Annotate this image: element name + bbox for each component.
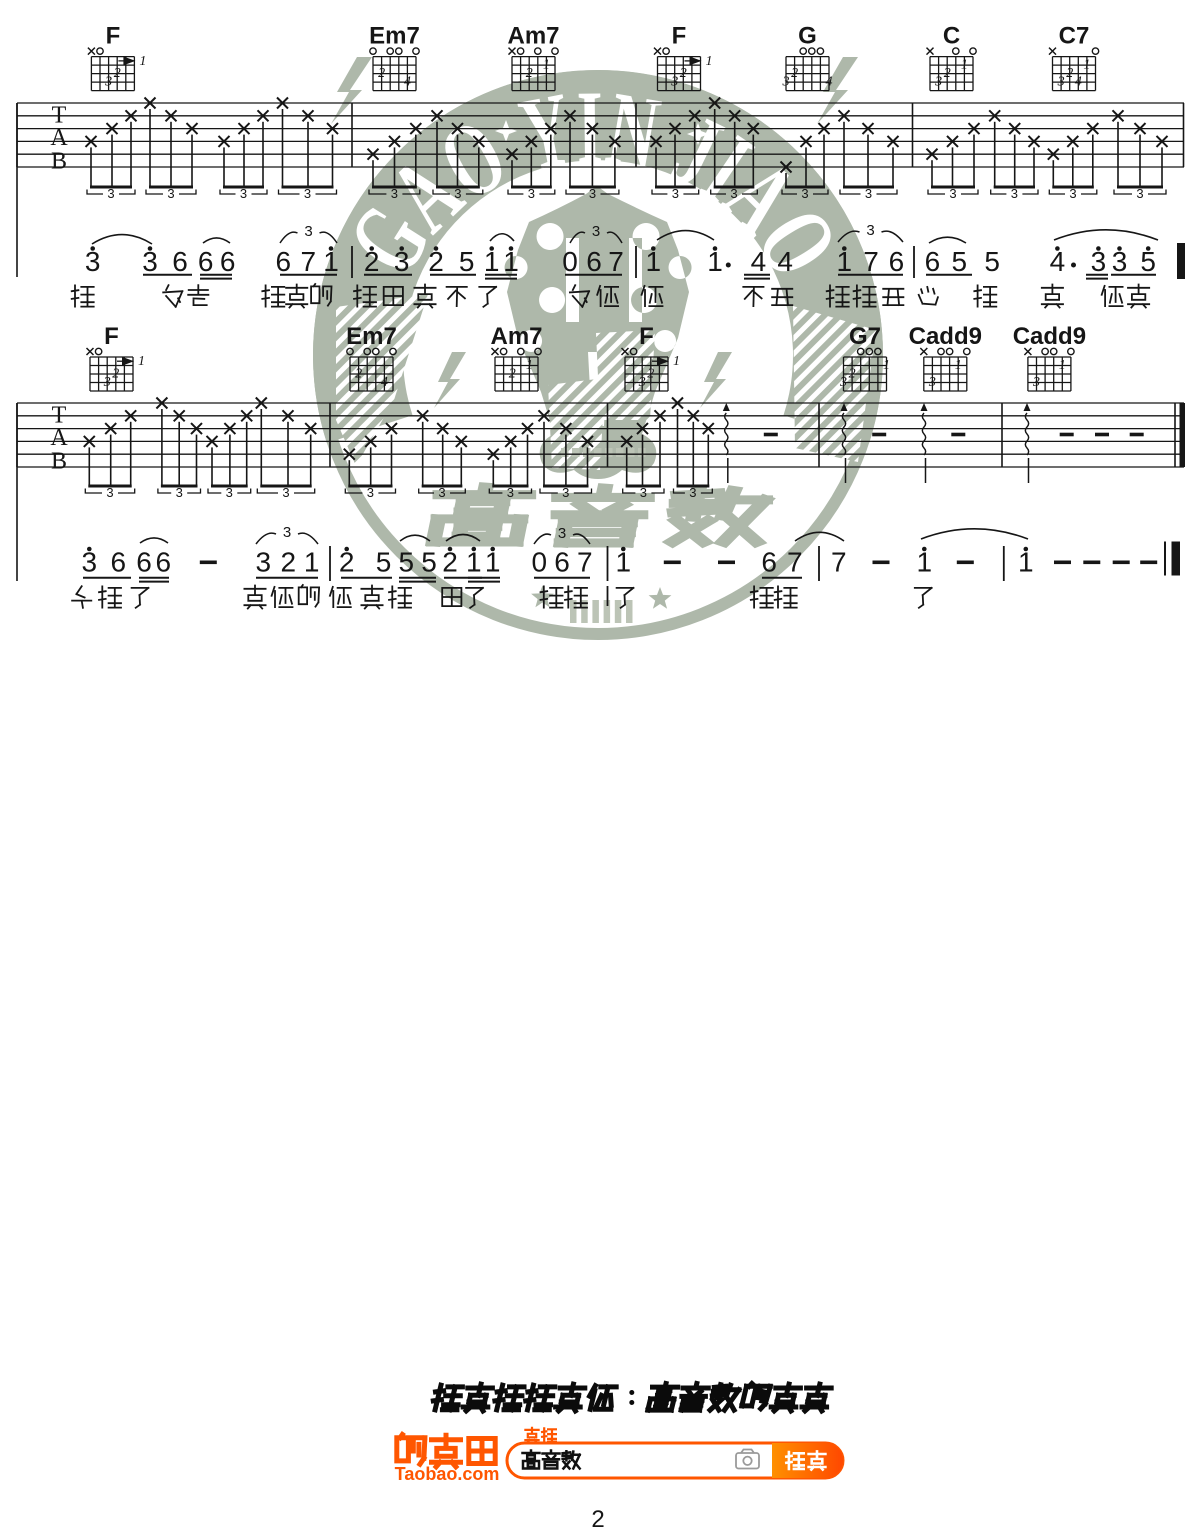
svg-text:3: 3: [1011, 186, 1018, 201]
svg-text:1: 1: [673, 354, 680, 369]
svg-text:3: 3: [167, 186, 174, 201]
svg-text:6: 6: [220, 246, 236, 277]
svg-text:1: 1: [139, 54, 146, 69]
svg-text:2: 2: [281, 547, 297, 578]
svg-text:4: 4: [751, 246, 767, 277]
svg-text:2: 2: [526, 66, 533, 81]
svg-text:3: 3: [928, 375, 936, 390]
svg-text:1: 1: [706, 54, 713, 69]
svg-text:3: 3: [782, 75, 790, 90]
svg-text:2: 2: [849, 367, 856, 382]
svg-text:2: 2: [791, 66, 798, 81]
svg-text:2: 2: [355, 367, 362, 382]
svg-text:6: 6: [761, 547, 777, 578]
svg-text:5: 5: [399, 547, 415, 578]
svg-text:7: 7: [863, 246, 879, 277]
svg-text:3: 3: [1057, 75, 1065, 90]
svg-text:3: 3: [528, 186, 535, 201]
svg-text:1: 1: [961, 58, 968, 73]
svg-text:3: 3: [240, 186, 247, 201]
svg-text:3: 3: [1069, 186, 1076, 201]
svg-text:4: 4: [404, 75, 411, 90]
svg-text:C7: C7: [1059, 23, 1090, 50]
svg-text:3: 3: [454, 186, 461, 201]
svg-text:3: 3: [103, 375, 111, 390]
svg-text:1: 1: [304, 547, 320, 578]
svg-text:2: 2: [680, 66, 687, 81]
svg-text:A: A: [50, 125, 68, 151]
svg-text:6: 6: [586, 246, 602, 277]
svg-text:3: 3: [282, 485, 289, 500]
svg-text:F: F: [639, 323, 654, 350]
svg-text:2: 2: [509, 367, 516, 382]
svg-text:G: G: [798, 23, 817, 50]
svg-text:3: 3: [283, 524, 291, 541]
svg-text:3: 3: [934, 75, 942, 90]
svg-text:3: 3: [104, 75, 112, 90]
svg-text:1: 1: [543, 58, 550, 73]
svg-text:2: 2: [591, 1506, 604, 1533]
svg-text:Am7: Am7: [490, 323, 542, 350]
svg-text:6: 6: [554, 547, 570, 578]
svg-text:5: 5: [459, 246, 475, 277]
svg-text:B: B: [51, 149, 67, 175]
svg-text:Em7: Em7: [346, 323, 397, 350]
svg-text:1: 1: [955, 358, 962, 373]
svg-text:6: 6: [156, 547, 172, 578]
svg-text:5: 5: [984, 246, 1000, 277]
svg-text:6: 6: [198, 246, 214, 277]
svg-text:6: 6: [889, 246, 905, 277]
svg-text:7: 7: [577, 547, 593, 578]
svg-text:3: 3: [1032, 375, 1040, 390]
svg-text:4: 4: [381, 375, 388, 390]
svg-text:F: F: [104, 323, 119, 350]
svg-text:6: 6: [925, 246, 941, 277]
svg-text:6: 6: [172, 246, 188, 277]
svg-text:0: 0: [562, 246, 578, 277]
svg-text:7: 7: [301, 246, 317, 277]
svg-text:4: 4: [777, 246, 793, 277]
svg-text:2: 2: [647, 367, 654, 382]
svg-text:3: 3: [672, 186, 679, 201]
svg-text:1: 1: [883, 358, 890, 373]
svg-text:5: 5: [952, 246, 968, 277]
svg-text:Em7: Em7: [369, 23, 420, 50]
svg-text:3: 3: [949, 186, 956, 201]
svg-text:3: 3: [865, 186, 872, 201]
svg-text:Cadd9: Cadd9: [1013, 323, 1086, 350]
svg-text:3: 3: [507, 485, 514, 500]
svg-text:3: 3: [866, 222, 874, 239]
svg-text:6: 6: [136, 547, 152, 578]
svg-text:3: 3: [730, 186, 737, 201]
svg-text:Cadd9: Cadd9: [909, 323, 982, 350]
svg-text:5: 5: [376, 547, 392, 578]
svg-text:0: 0: [532, 547, 548, 578]
svg-text:3: 3: [107, 186, 114, 201]
svg-text:2: 2: [944, 66, 951, 81]
svg-text:5: 5: [421, 547, 437, 578]
svg-text:3: 3: [304, 186, 311, 201]
svg-text:1: 1: [138, 354, 145, 369]
svg-text:3: 3: [438, 485, 445, 500]
svg-text:2: 2: [114, 66, 121, 81]
svg-text:3: 3: [256, 547, 272, 578]
svg-text:Am7: Am7: [507, 23, 559, 50]
svg-text:F: F: [106, 23, 121, 50]
svg-text:6: 6: [276, 246, 292, 277]
svg-text:3: 3: [106, 485, 113, 500]
svg-text:2: 2: [112, 367, 119, 382]
svg-text:B: B: [51, 449, 67, 475]
svg-text:3: 3: [558, 525, 566, 542]
svg-text:3: 3: [589, 186, 596, 201]
svg-text:3: 3: [670, 75, 678, 90]
svg-text:3: 3: [367, 485, 374, 500]
svg-text:Taobao.com: Taobao.com: [395, 1464, 500, 1484]
svg-text:4: 4: [1075, 75, 1082, 90]
svg-text:3: 3: [562, 485, 569, 500]
svg-text:C: C: [943, 23, 960, 50]
svg-text:7: 7: [787, 547, 803, 578]
svg-text:2: 2: [1066, 66, 1073, 81]
svg-text:1: 1: [526, 358, 533, 373]
svg-text:3: 3: [839, 375, 847, 390]
svg-text:7: 7: [608, 246, 624, 277]
svg-text:3: 3: [391, 186, 398, 201]
svg-text:7: 7: [831, 547, 847, 578]
svg-text:3: 3: [689, 485, 696, 500]
svg-text:1: 1: [1083, 58, 1090, 73]
svg-text:A: A: [50, 425, 68, 451]
svg-text:3: 3: [638, 375, 646, 390]
svg-text:6: 6: [111, 547, 127, 578]
svg-text:F: F: [672, 23, 687, 50]
svg-text:3: 3: [801, 186, 808, 201]
svg-text:4: 4: [826, 75, 833, 90]
svg-text:2: 2: [378, 66, 385, 81]
svg-text:3: 3: [226, 485, 233, 500]
svg-text:G7: G7: [849, 323, 881, 350]
svg-text:3: 3: [592, 223, 600, 240]
svg-text:1: 1: [1059, 358, 1066, 373]
svg-text:3: 3: [1136, 186, 1143, 201]
svg-text:3: 3: [304, 223, 312, 240]
svg-text:3: 3: [640, 485, 647, 500]
svg-text:3: 3: [176, 485, 183, 500]
